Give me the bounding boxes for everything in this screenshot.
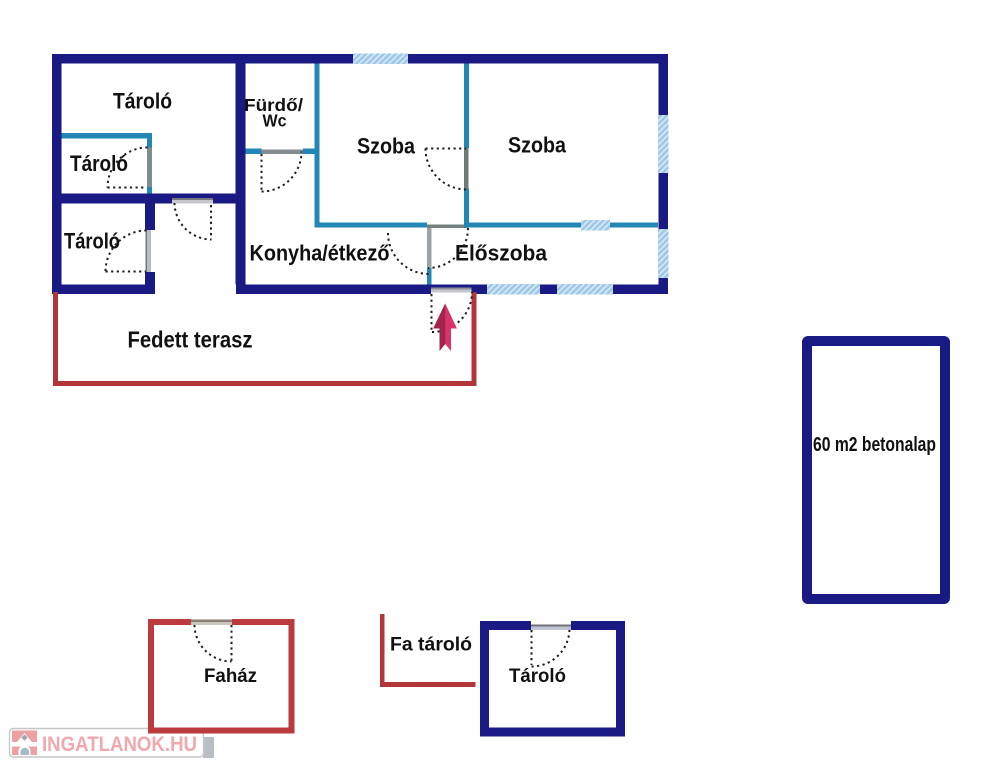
svg-text:INGATLANOK.HU: INGATLANOK.HU — [42, 733, 197, 756]
svg-text:Konyha/étkező: Konyha/étkező — [250, 241, 390, 266]
svg-text:Tároló: Tároló — [64, 229, 120, 254]
svg-text:Faház: Faház — [204, 665, 257, 687]
svg-text:Fedett terasz: Fedett terasz — [128, 327, 253, 353]
svg-text:Előszoba: Előszoba — [455, 241, 547, 266]
svg-text:Wc: Wc — [263, 110, 287, 130]
svg-text:60 m2 betonalap: 60 m2 betonalap — [813, 434, 936, 456]
svg-text:Tároló: Tároló — [70, 151, 128, 176]
svg-text:Fa tároló: Fa tároló — [390, 634, 472, 656]
svg-text:Szoba: Szoba — [357, 134, 415, 159]
svg-text:Tároló: Tároló — [509, 665, 566, 687]
svg-text:Szoba: Szoba — [508, 133, 566, 158]
svg-text:Tároló: Tároló — [113, 89, 172, 114]
